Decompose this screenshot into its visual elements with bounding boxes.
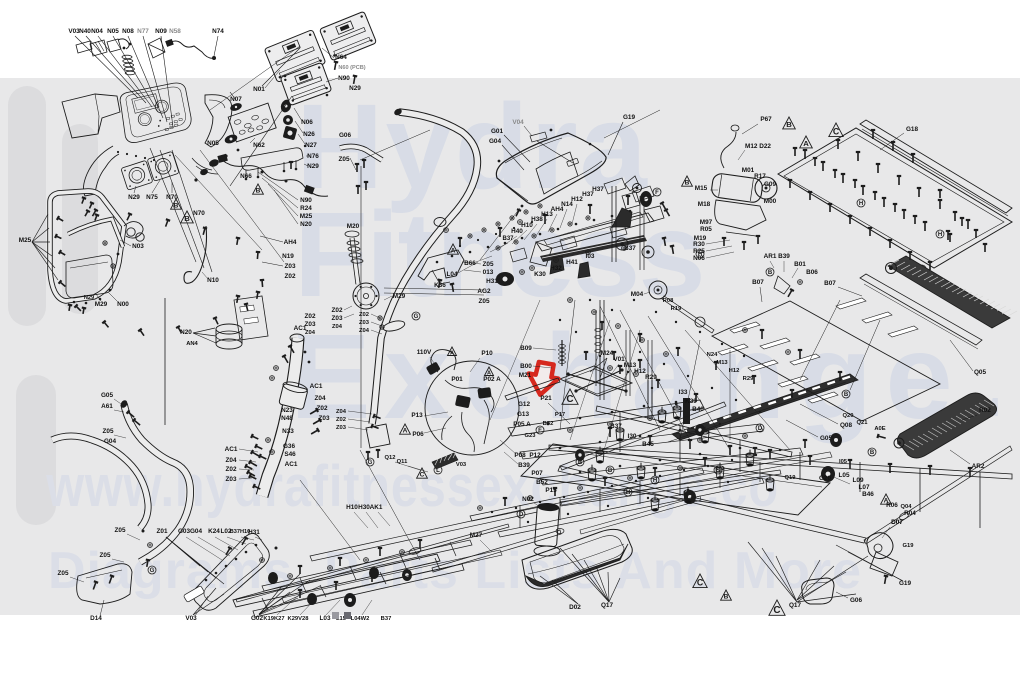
svg-text:G13: G13: [517, 411, 530, 418]
svg-text:H: H: [698, 252, 702, 258]
svg-text:N10: N10: [207, 277, 219, 284]
svg-text:Z05: Z05: [114, 527, 125, 534]
svg-text:G23: G23: [525, 433, 537, 439]
svg-text:G12: G12: [518, 401, 531, 408]
svg-text:Z03: Z03: [304, 321, 315, 328]
svg-text:N19: N19: [282, 253, 294, 260]
svg-text:H37: H37: [592, 186, 604, 193]
svg-text:A: A: [487, 370, 491, 376]
svg-text:B: B: [256, 188, 261, 195]
svg-text:H40: H40: [511, 228, 523, 235]
svg-text:N05: N05: [207, 140, 219, 147]
svg-text:L04: L04: [446, 271, 457, 278]
svg-text:P05 A: P05 A: [513, 421, 531, 428]
svg-text:M21: M21: [519, 372, 532, 379]
svg-text:M18: M18: [698, 201, 711, 208]
svg-text:Q11: Q11: [397, 459, 408, 465]
svg-text:N27: N27: [305, 142, 317, 149]
svg-text:B: B: [786, 120, 792, 129]
svg-text:Q20: Q20: [843, 413, 854, 419]
svg-text:Q05: Q05: [974, 369, 987, 376]
svg-text:B46: B46: [862, 491, 874, 498]
svg-text:R05: R05: [700, 226, 712, 233]
svg-text:K24: K24: [208, 528, 220, 535]
svg-text:N06: N06: [301, 119, 313, 126]
svg-text:G18: G18: [906, 126, 919, 133]
svg-text:G09: G09: [764, 181, 777, 188]
svg-text:M24: M24: [601, 350, 614, 357]
svg-text:V03: V03: [185, 615, 197, 622]
svg-text:N77: N77: [137, 28, 149, 35]
svg-text:N24: N24: [707, 352, 718, 358]
svg-text:N09: N09: [155, 28, 167, 35]
svg-text:V03: V03: [456, 462, 467, 468]
svg-text:R29: R29: [743, 376, 754, 382]
svg-text:N29: N29: [84, 295, 94, 301]
svg-text:A0E: A0E: [874, 426, 885, 432]
svg-text:B01: B01: [794, 261, 806, 268]
svg-text:L07: L07: [858, 484, 869, 491]
svg-text:Q17: Q17: [601, 602, 614, 609]
svg-text:I03: I03: [586, 253, 595, 260]
svg-text:H41: H41: [566, 259, 578, 266]
svg-text:G20: G20: [819, 475, 832, 482]
svg-text:Z04: Z04: [305, 330, 316, 336]
svg-text:H10: H10: [346, 504, 358, 511]
svg-text:C: C: [420, 472, 425, 479]
svg-text:B00: B00: [520, 363, 532, 370]
svg-text:Z03: Z03: [284, 263, 295, 270]
svg-text:R30: R30: [693, 241, 705, 248]
svg-text:R19: R19: [671, 306, 682, 312]
svg-text:C: C: [697, 578, 704, 588]
svg-text:Z02: Z02: [331, 307, 342, 314]
svg-text:P17: P17: [555, 412, 565, 418]
svg-text:G: G: [150, 568, 155, 574]
svg-text:B07: B07: [752, 279, 764, 286]
svg-text:B39: B39: [778, 253, 790, 260]
svg-text:H: H: [938, 232, 942, 238]
svg-text:N76: N76: [307, 153, 319, 160]
svg-text:Z02: Z02: [304, 313, 315, 320]
svg-text:N70: N70: [193, 210, 205, 217]
svg-text:H10: H10: [521, 222, 533, 229]
svg-text:P08: P08: [514, 452, 526, 459]
svg-text:R29: R29: [645, 374, 657, 381]
svg-text:N75: N75: [146, 194, 158, 201]
svg-text:C: C: [566, 394, 573, 405]
svg-text:B: B: [685, 180, 690, 187]
svg-text:B06: B06: [806, 269, 818, 276]
svg-text:B: B: [844, 392, 849, 398]
svg-text:M29: M29: [393, 293, 406, 300]
svg-text:Z05: Z05: [338, 156, 349, 163]
svg-text:L: L: [436, 468, 440, 474]
svg-text:Q21: Q21: [857, 420, 869, 426]
svg-text:Z05: Z05: [102, 428, 113, 435]
svg-text:M04: M04: [631, 291, 644, 298]
svg-text:Z02: Z02: [359, 312, 369, 318]
svg-text:H: H: [859, 201, 863, 207]
svg-text:R04: R04: [904, 510, 916, 517]
svg-text:L04W2: L04W2: [351, 616, 370, 622]
svg-text:B: B: [608, 468, 613, 474]
svg-text:M25: M25: [300, 213, 313, 220]
svg-text:G19: G19: [899, 580, 912, 587]
svg-text:I05: I05: [839, 459, 848, 465]
svg-text:N90: N90: [338, 75, 350, 82]
svg-text:P07: P07: [531, 470, 543, 477]
svg-text:M27: M27: [470, 532, 483, 539]
svg-text:B: B: [184, 214, 190, 223]
svg-text:D14: D14: [90, 615, 102, 622]
svg-text:B: B: [870, 450, 875, 456]
svg-text:Z04: Z04: [332, 324, 343, 330]
svg-text:Z04: Z04: [359, 328, 370, 334]
svg-text:Z02: Z02: [316, 405, 327, 412]
svg-text:D: D: [758, 426, 763, 432]
svg-text:N08: N08: [122, 28, 134, 35]
svg-text:B: B: [724, 594, 729, 601]
svg-text:G06: G06: [339, 132, 352, 139]
svg-text:013: 013: [483, 269, 494, 276]
svg-text:Z05: Z05: [57, 570, 68, 577]
svg-text:Q17: Q17: [789, 602, 802, 609]
svg-text:N00: N00: [117, 301, 129, 308]
svg-text:Z03: Z03: [318, 415, 329, 422]
svg-text:G: G: [414, 314, 419, 320]
svg-text:B39: B39: [518, 462, 530, 469]
svg-text:B52: B52: [543, 421, 554, 427]
svg-text:P13: P13: [411, 412, 423, 419]
svg-text:Z04: Z04: [225, 457, 236, 464]
svg-text:B37: B37: [381, 616, 392, 622]
svg-text:G19: G19: [903, 543, 915, 549]
svg-text:N64: N64: [335, 54, 347, 61]
svg-text:Q08: Q08: [840, 422, 853, 429]
svg-text:Q12: Q12: [385, 455, 396, 461]
svg-text:H31: H31: [248, 529, 260, 536]
svg-text:A61: A61: [101, 403, 113, 410]
svg-text:P21: P21: [540, 395, 552, 402]
svg-text:G06: G06: [850, 597, 863, 604]
svg-text:B66: B66: [464, 260, 476, 267]
svg-text:Z03: Z03: [359, 320, 370, 326]
svg-text:N04: N04: [91, 28, 103, 35]
svg-text:Z02: Z02: [336, 417, 346, 423]
svg-text:N66: N66: [240, 173, 252, 180]
svg-text:Z03: Z03: [331, 315, 342, 322]
svg-text:A: A: [403, 428, 408, 435]
svg-text:www.hydrafitnessexchange.co: www.hydrafitnessexchange.co: [45, 455, 779, 519]
svg-text:P02 A: P02 A: [483, 376, 501, 383]
svg-text:AG2: AG2: [477, 288, 491, 295]
svg-text:AK1: AK1: [370, 504, 383, 511]
svg-text:L05: L05: [838, 472, 849, 479]
svg-text:A: A: [803, 139, 809, 148]
svg-text:N62: N62: [253, 142, 265, 149]
svg-text:H32: H32: [550, 265, 562, 272]
svg-text:AC1: AC1: [310, 383, 323, 390]
svg-text:B: B: [768, 270, 773, 276]
svg-text:AR1: AR1: [764, 253, 777, 260]
svg-text:N74: N74: [212, 28, 224, 35]
svg-text:H12: H12: [729, 368, 740, 374]
svg-text:Z04: Z04: [314, 395, 325, 402]
svg-text:I33: I33: [679, 389, 688, 396]
svg-text:B09: B09: [520, 345, 532, 352]
svg-text:Z02: Z02: [225, 466, 236, 473]
svg-text:G02: G02: [251, 615, 264, 622]
svg-text:N58: N58: [169, 28, 181, 35]
svg-text:Z01: Z01: [156, 528, 167, 535]
svg-text:N40: N40: [79, 28, 91, 35]
svg-text:R02: R02: [979, 407, 991, 414]
svg-text:N29: N29: [128, 194, 140, 201]
svg-text:N03: N03: [132, 243, 144, 250]
svg-text:G19: G19: [623, 114, 636, 121]
svg-text:G05: G05: [101, 392, 114, 399]
svg-text:S46: S46: [284, 451, 296, 458]
svg-text:K19K27: K19K27: [263, 616, 284, 622]
svg-text:M00: M00: [764, 198, 777, 205]
svg-text:K36: K36: [434, 282, 446, 289]
svg-text:M25: M25: [19, 237, 32, 244]
svg-text:M20: M20: [347, 223, 360, 230]
svg-text:G36: G36: [283, 443, 296, 450]
svg-text:G04: G04: [190, 528, 203, 535]
svg-text:D02: D02: [569, 604, 581, 611]
svg-text:N29: N29: [349, 85, 361, 92]
svg-text:P12: P12: [529, 452, 541, 459]
svg-text:G03: G03: [178, 528, 191, 535]
svg-text:N23: N23: [281, 407, 293, 414]
svg-text:B45: B45: [642, 441, 654, 448]
svg-text:P06: P06: [412, 431, 424, 438]
svg-text:N05: N05: [107, 28, 119, 35]
svg-text:M01: M01: [742, 167, 755, 174]
svg-text:M97: M97: [700, 219, 713, 226]
svg-text:P67: P67: [760, 116, 772, 123]
svg-text:B07: B07: [824, 280, 836, 287]
svg-text:N20: N20: [300, 221, 312, 228]
svg-text:R17: R17: [754, 173, 766, 180]
svg-text:M15: M15: [695, 185, 708, 192]
svg-text:N29: N29: [307, 163, 319, 170]
svg-text:Z05: Z05: [478, 298, 489, 305]
svg-text:N60 (PCB): N60 (PCB): [338, 65, 365, 71]
svg-text:Q04: Q04: [901, 504, 913, 510]
svg-text:Z04: Z04: [336, 409, 347, 415]
svg-text:M12 D22: M12 D22: [745, 143, 771, 150]
svg-text:K30: K30: [534, 271, 546, 278]
svg-text:Z03: Z03: [225, 476, 236, 483]
svg-text:G01: G01: [491, 128, 504, 135]
svg-text:A: A: [884, 498, 889, 505]
svg-text:G04: G04: [104, 438, 117, 445]
svg-text:M29: M29: [95, 301, 108, 308]
svg-text:AC1: AC1: [225, 446, 238, 453]
svg-text:L03: L03: [319, 615, 330, 622]
svg-text:C: C: [773, 605, 780, 616]
svg-text:F: F: [538, 428, 542, 434]
svg-text:K29V28: K29V28: [288, 616, 310, 622]
svg-text:L09: L09: [852, 477, 863, 484]
svg-text:N90: N90: [300, 197, 312, 204]
svg-text:R08: R08: [663, 298, 674, 304]
svg-text:R24: R24: [300, 205, 312, 212]
svg-text:F: F: [655, 190, 659, 196]
svg-text:H30: H30: [358, 504, 370, 511]
svg-text:P01: P01: [451, 376, 463, 383]
svg-text:Z05: Z05: [482, 261, 493, 268]
svg-text:Z05: Z05: [99, 552, 110, 559]
svg-text:AH4: AH4: [284, 239, 297, 246]
svg-text:N48: N48: [281, 415, 293, 422]
svg-text:Diagrams, Parts Lists And More: Diagrams, Parts Lists And More: [48, 542, 862, 600]
svg-text:C: C: [833, 127, 840, 137]
svg-text:Z03: Z03: [336, 425, 347, 431]
svg-text:N33: N33: [282, 428, 294, 435]
svg-text:B52: B52: [536, 479, 548, 486]
svg-text:N07: N07: [230, 96, 242, 103]
svg-text:A: A: [451, 248, 456, 255]
svg-text:110V: 110V: [417, 349, 432, 356]
svg-text:Z02: Z02: [284, 273, 295, 280]
svg-text:N26: N26: [303, 131, 315, 138]
svg-text:N01: N01: [253, 86, 265, 93]
svg-text:V04: V04: [512, 119, 524, 126]
svg-text:G04: G04: [489, 138, 502, 145]
svg-text:D: D: [519, 512, 524, 518]
svg-text:AN4: AN4: [186, 341, 198, 347]
svg-text:M13: M13: [716, 360, 728, 366]
svg-text:A: A: [450, 350, 454, 356]
svg-text:AC1: AC1: [285, 461, 298, 468]
svg-text:Q19: Q19: [785, 475, 797, 481]
svg-text:P10: P10: [481, 350, 493, 357]
